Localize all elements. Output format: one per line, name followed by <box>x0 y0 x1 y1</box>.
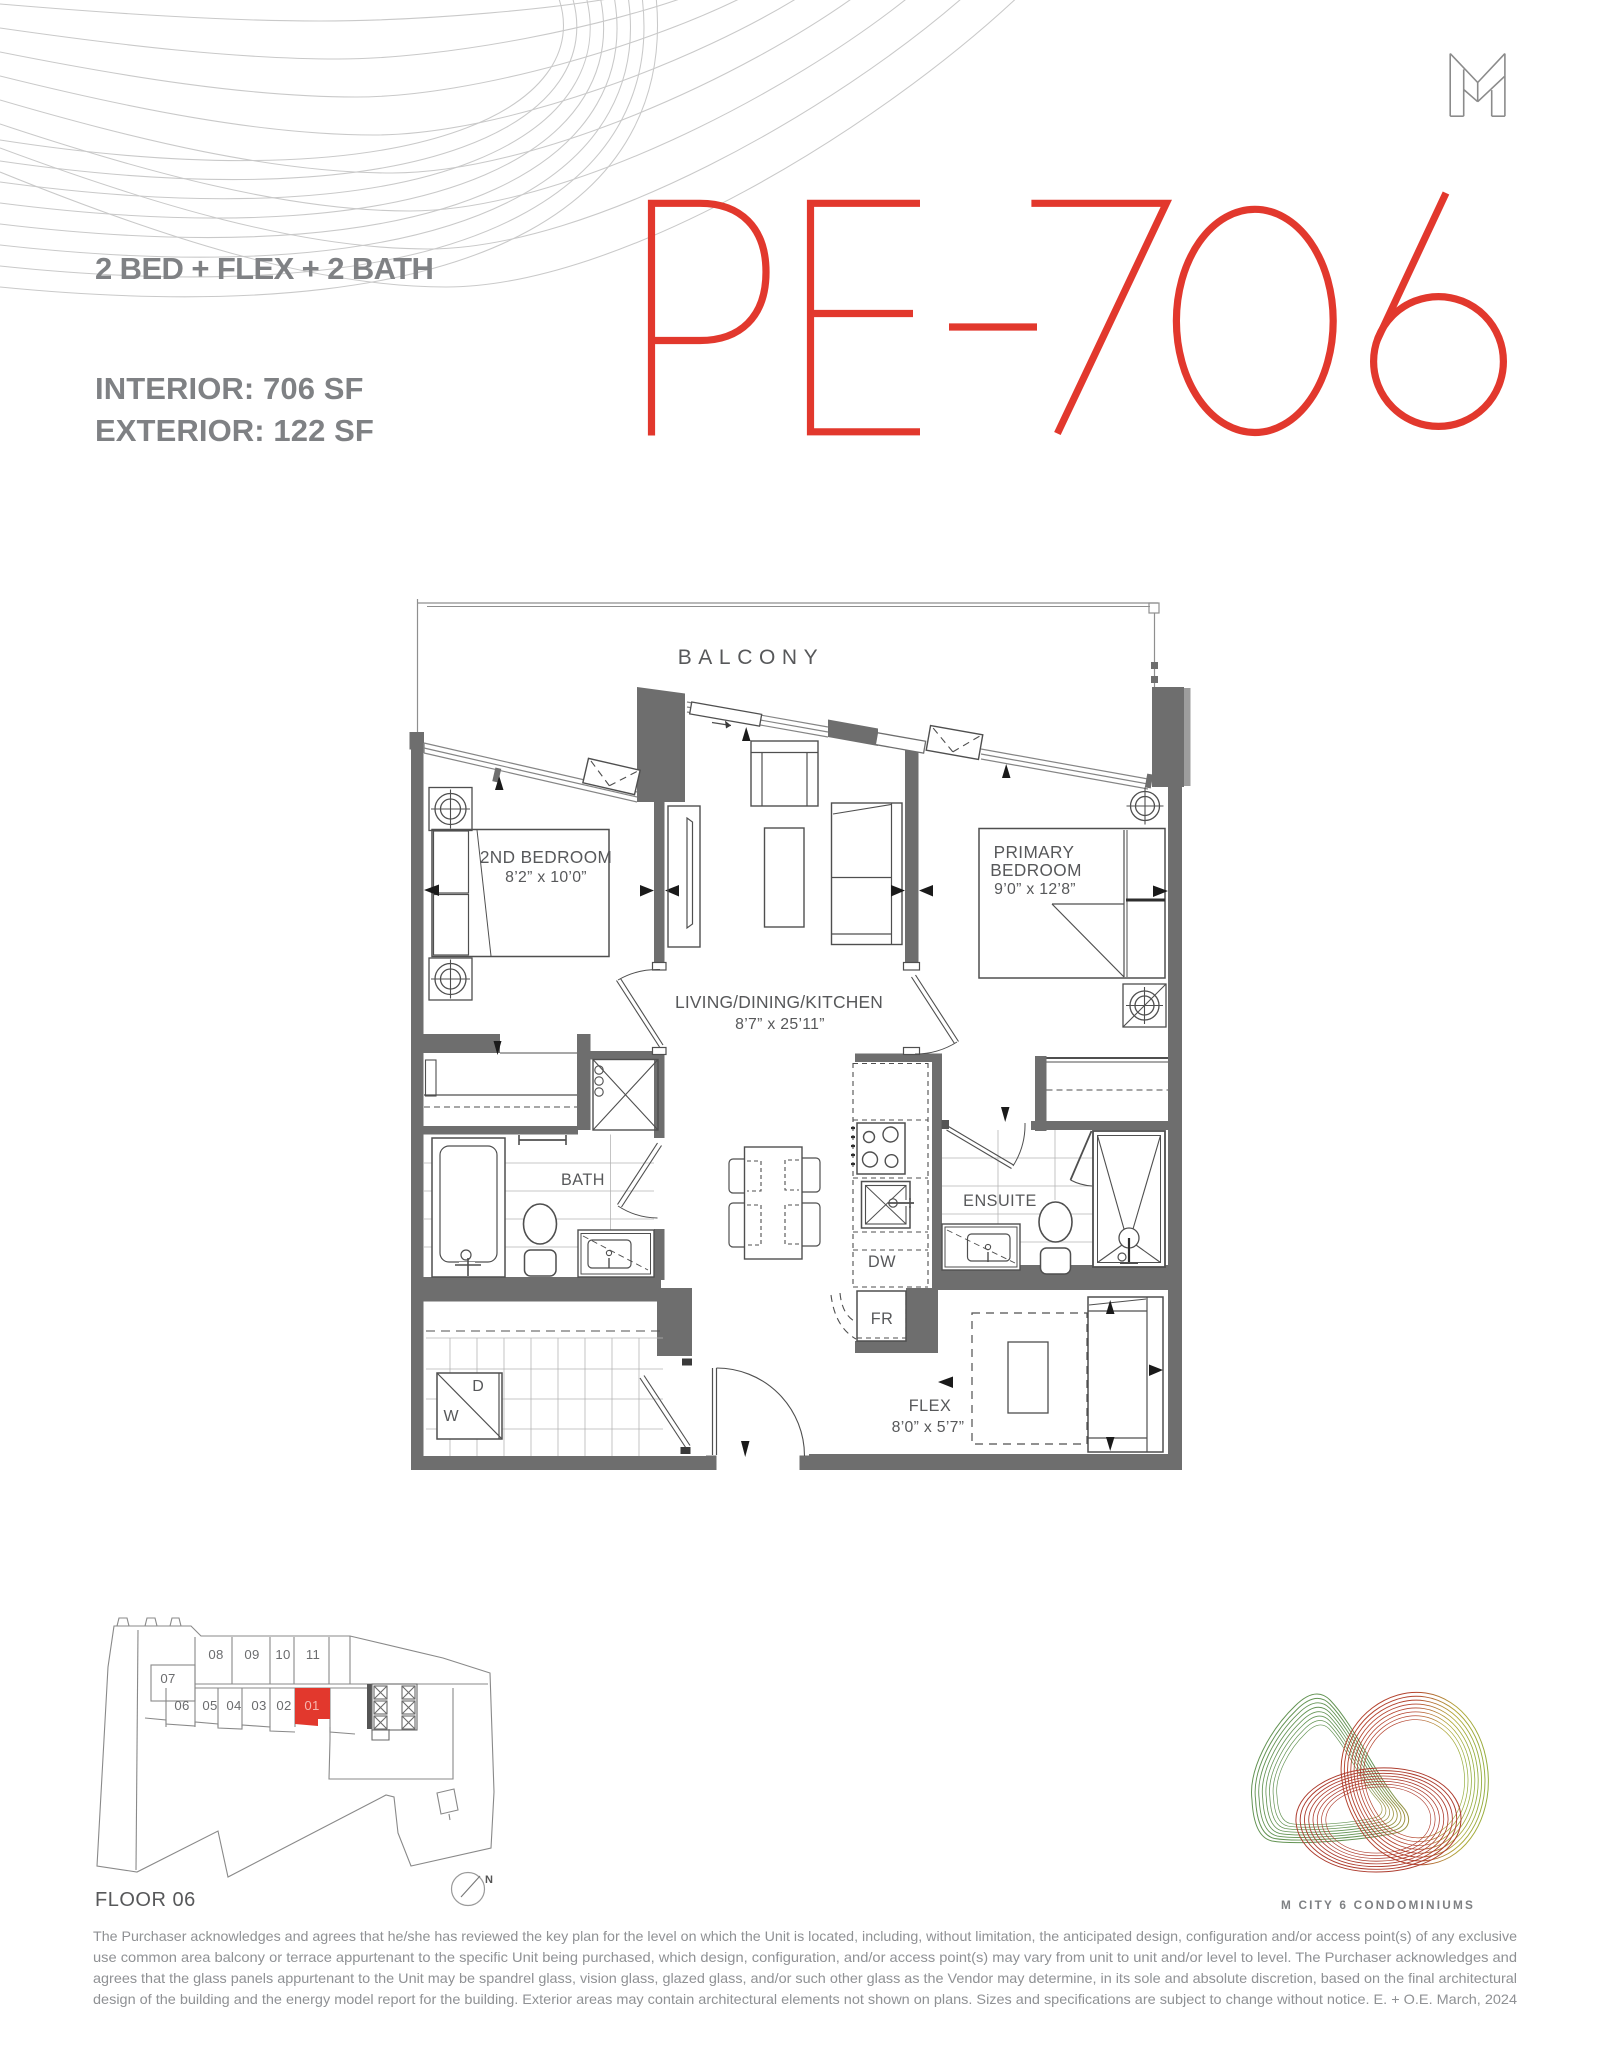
svg-text:2 BED + FLEX + 2 BATH: 2 BED + FLEX + 2 BATH <box>95 251 433 286</box>
svg-text:01: 01 <box>304 1698 319 1713</box>
svg-text:M CITY 6 CONDOMINIUMS: M CITY 6 CONDOMINIUMS <box>1281 1898 1475 1912</box>
svg-text:08: 08 <box>208 1647 223 1662</box>
svg-text:2ND BEDROOM: 2ND BEDROOM <box>480 847 612 867</box>
svg-text:The Purchaser acknowledges and: The Purchaser acknowledges and agrees th… <box>93 1929 1517 1944</box>
svg-text:10: 10 <box>275 1647 290 1662</box>
svg-text:PRIMARY: PRIMARY <box>994 842 1075 862</box>
svg-text:D: D <box>472 1378 484 1395</box>
svg-text:03: 03 <box>251 1698 266 1713</box>
svg-text:use common area balcony or ter: use common area balcony or terrace appur… <box>93 1950 1517 1965</box>
svg-text:09: 09 <box>244 1647 259 1662</box>
svg-text:8’7” x 25’11”: 8’7” x 25’11” <box>735 1016 825 1033</box>
svg-text:agrees that the glass panels a: agrees that the glass panels appurtenant… <box>93 1971 1517 1986</box>
svg-text:BATH: BATH <box>561 1171 605 1189</box>
svg-text:EXTERIOR: 122 SF: EXTERIOR: 122 SF <box>95 413 374 448</box>
svg-text:9’0” x 12’8”: 9’0” x 12’8” <box>994 881 1076 898</box>
svg-text:BEDROOM: BEDROOM <box>990 860 1082 880</box>
svg-text:05: 05 <box>202 1698 217 1713</box>
svg-text:02: 02 <box>276 1698 291 1713</box>
svg-text:ENSUITE: ENSUITE <box>963 1192 1037 1210</box>
svg-text:INTERIOR: 706 SF: INTERIOR: 706 SF <box>95 371 364 406</box>
svg-text:DW: DW <box>868 1253 896 1271</box>
svg-text:N: N <box>485 1874 493 1886</box>
svg-text:FLEX: FLEX <box>909 1397 952 1415</box>
svg-text:8’0” x 5’7”: 8’0” x 5’7” <box>892 1419 965 1436</box>
svg-text:LIVING/DINING/KITCHEN: LIVING/DINING/KITCHEN <box>675 992 883 1012</box>
svg-text:11: 11 <box>306 1647 320 1662</box>
svg-text:8’2” x 10’0”: 8’2” x 10’0” <box>505 869 587 886</box>
svg-text:07: 07 <box>160 1671 175 1686</box>
svg-text:W: W <box>443 1408 459 1425</box>
svg-text:BALCONY: BALCONY <box>678 646 825 669</box>
svg-text:06: 06 <box>174 1698 189 1713</box>
svg-text:FR: FR <box>871 1310 894 1328</box>
svg-text:04: 04 <box>226 1698 241 1713</box>
svg-text:design of the building and the: design of the building and the energy mo… <box>93 1992 1517 2007</box>
svg-text:FLOOR 06: FLOOR 06 <box>95 1889 196 1911</box>
